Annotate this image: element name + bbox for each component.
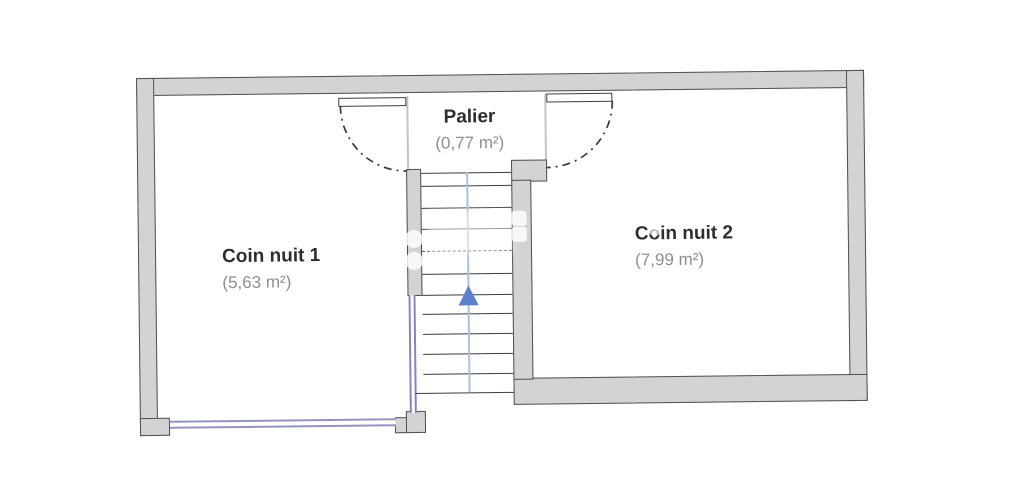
wall-left: [136, 78, 158, 436]
stair-wall-header: [511, 159, 547, 181]
room-area-palier: (0,77 m²): [385, 130, 555, 156]
watermark-blob: [428, 210, 512, 255]
stair-railing: [409, 295, 417, 413]
room-area-coin-nuit-1: (5,63 m²): [222, 270, 320, 295]
door-swing-arc-right: [546, 101, 613, 168]
staircase: [0, 0, 1021, 6]
watermark-blob: [649, 224, 661, 236]
wall-stub-bottom-center: [406, 411, 426, 433]
stair-wall-right: [511, 180, 533, 380]
room-label-palier: Palier (0,77 m²): [384, 103, 555, 155]
watermark-blob: [512, 211, 527, 226]
watermark-blob: [405, 230, 423, 248]
stair-up-arrow-icon: [458, 285, 478, 305]
window-bottom: [170, 418, 396, 429]
stair-walk-line: [466, 172, 470, 392]
wall-stub-bottom-center-foot: [395, 417, 407, 433]
floorplan-canvas: Palier (0,77 m²) Coin nuit 1 (5,63 m²) C…: [0, 0, 1024, 488]
room-area-coin-nuit-2: (7,99 m²): [635, 247, 733, 272]
wall-stub-bottom-left: [140, 418, 170, 436]
room-name-coin-nuit-1: Coin nuit 1: [222, 243, 320, 271]
door-leaf-right: [546, 93, 612, 103]
room-label-coin-nuit-1: Coin nuit 1 (5,63 m²): [222, 243, 321, 295]
floorplan: Palier (0,77 m²) Coin nuit 1 (5,63 m²) C…: [0, 0, 1024, 488]
wall-top: [136, 70, 864, 96]
watermark-blob: [405, 252, 423, 270]
wall-right: [846, 70, 868, 401]
stair-tread: [416, 392, 514, 394]
wall-bottom-right-room: [513, 374, 867, 405]
room-name-palier: Palier: [384, 103, 554, 132]
watermark-blob: [512, 227, 527, 242]
